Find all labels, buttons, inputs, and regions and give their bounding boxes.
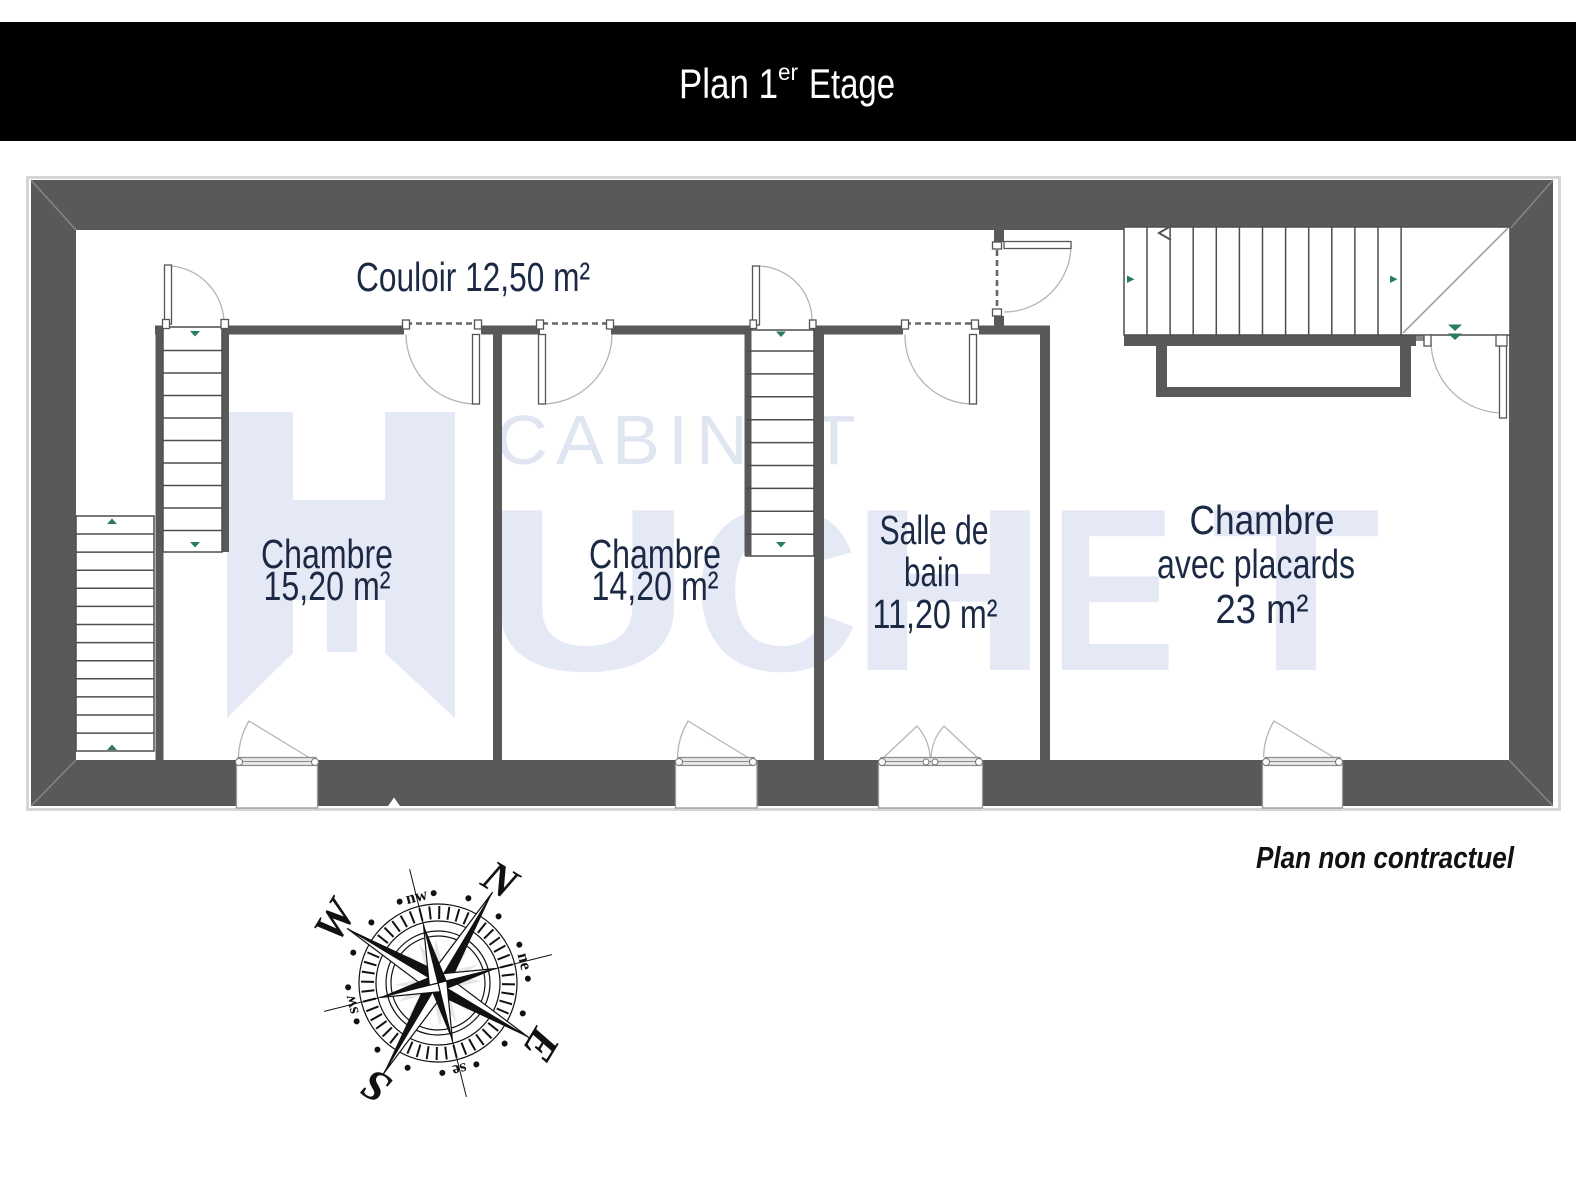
svg-text:E: E <box>1049 461 1176 720</box>
svg-text:S: S <box>353 1059 399 1114</box>
svg-text:15,20 m²: 15,20 m² <box>264 563 391 609</box>
svg-text:se: se <box>450 1059 469 1081</box>
svg-text:ne: ne <box>514 951 537 973</box>
svg-text:Plan non contractuel: Plan non contractuel <box>1256 840 1515 875</box>
svg-text:Salle de: Salle de <box>880 507 989 553</box>
svg-text:Chambre: Chambre <box>1190 497 1335 543</box>
svg-text:er: er <box>778 59 798 85</box>
svg-text:Plan 1: Plan 1 <box>679 60 778 107</box>
svg-text:W: W <box>304 889 368 950</box>
svg-text:Couloir 12,50 m²: Couloir 12,50 m² <box>356 254 590 300</box>
svg-text:avec placards: avec placards <box>1157 541 1355 587</box>
svg-text:sw: sw <box>339 992 362 1016</box>
svg-text:Etage: Etage <box>809 60 895 107</box>
svg-text:N: N <box>473 850 528 910</box>
svg-text:E: E <box>513 1019 571 1070</box>
svg-text:23 m²: 23 m² <box>1216 586 1309 632</box>
svg-text:14,20 m²: 14,20 m² <box>592 563 719 609</box>
svg-text:bain: bain <box>904 549 960 595</box>
svg-text:11,20 m²: 11,20 m² <box>873 591 998 637</box>
